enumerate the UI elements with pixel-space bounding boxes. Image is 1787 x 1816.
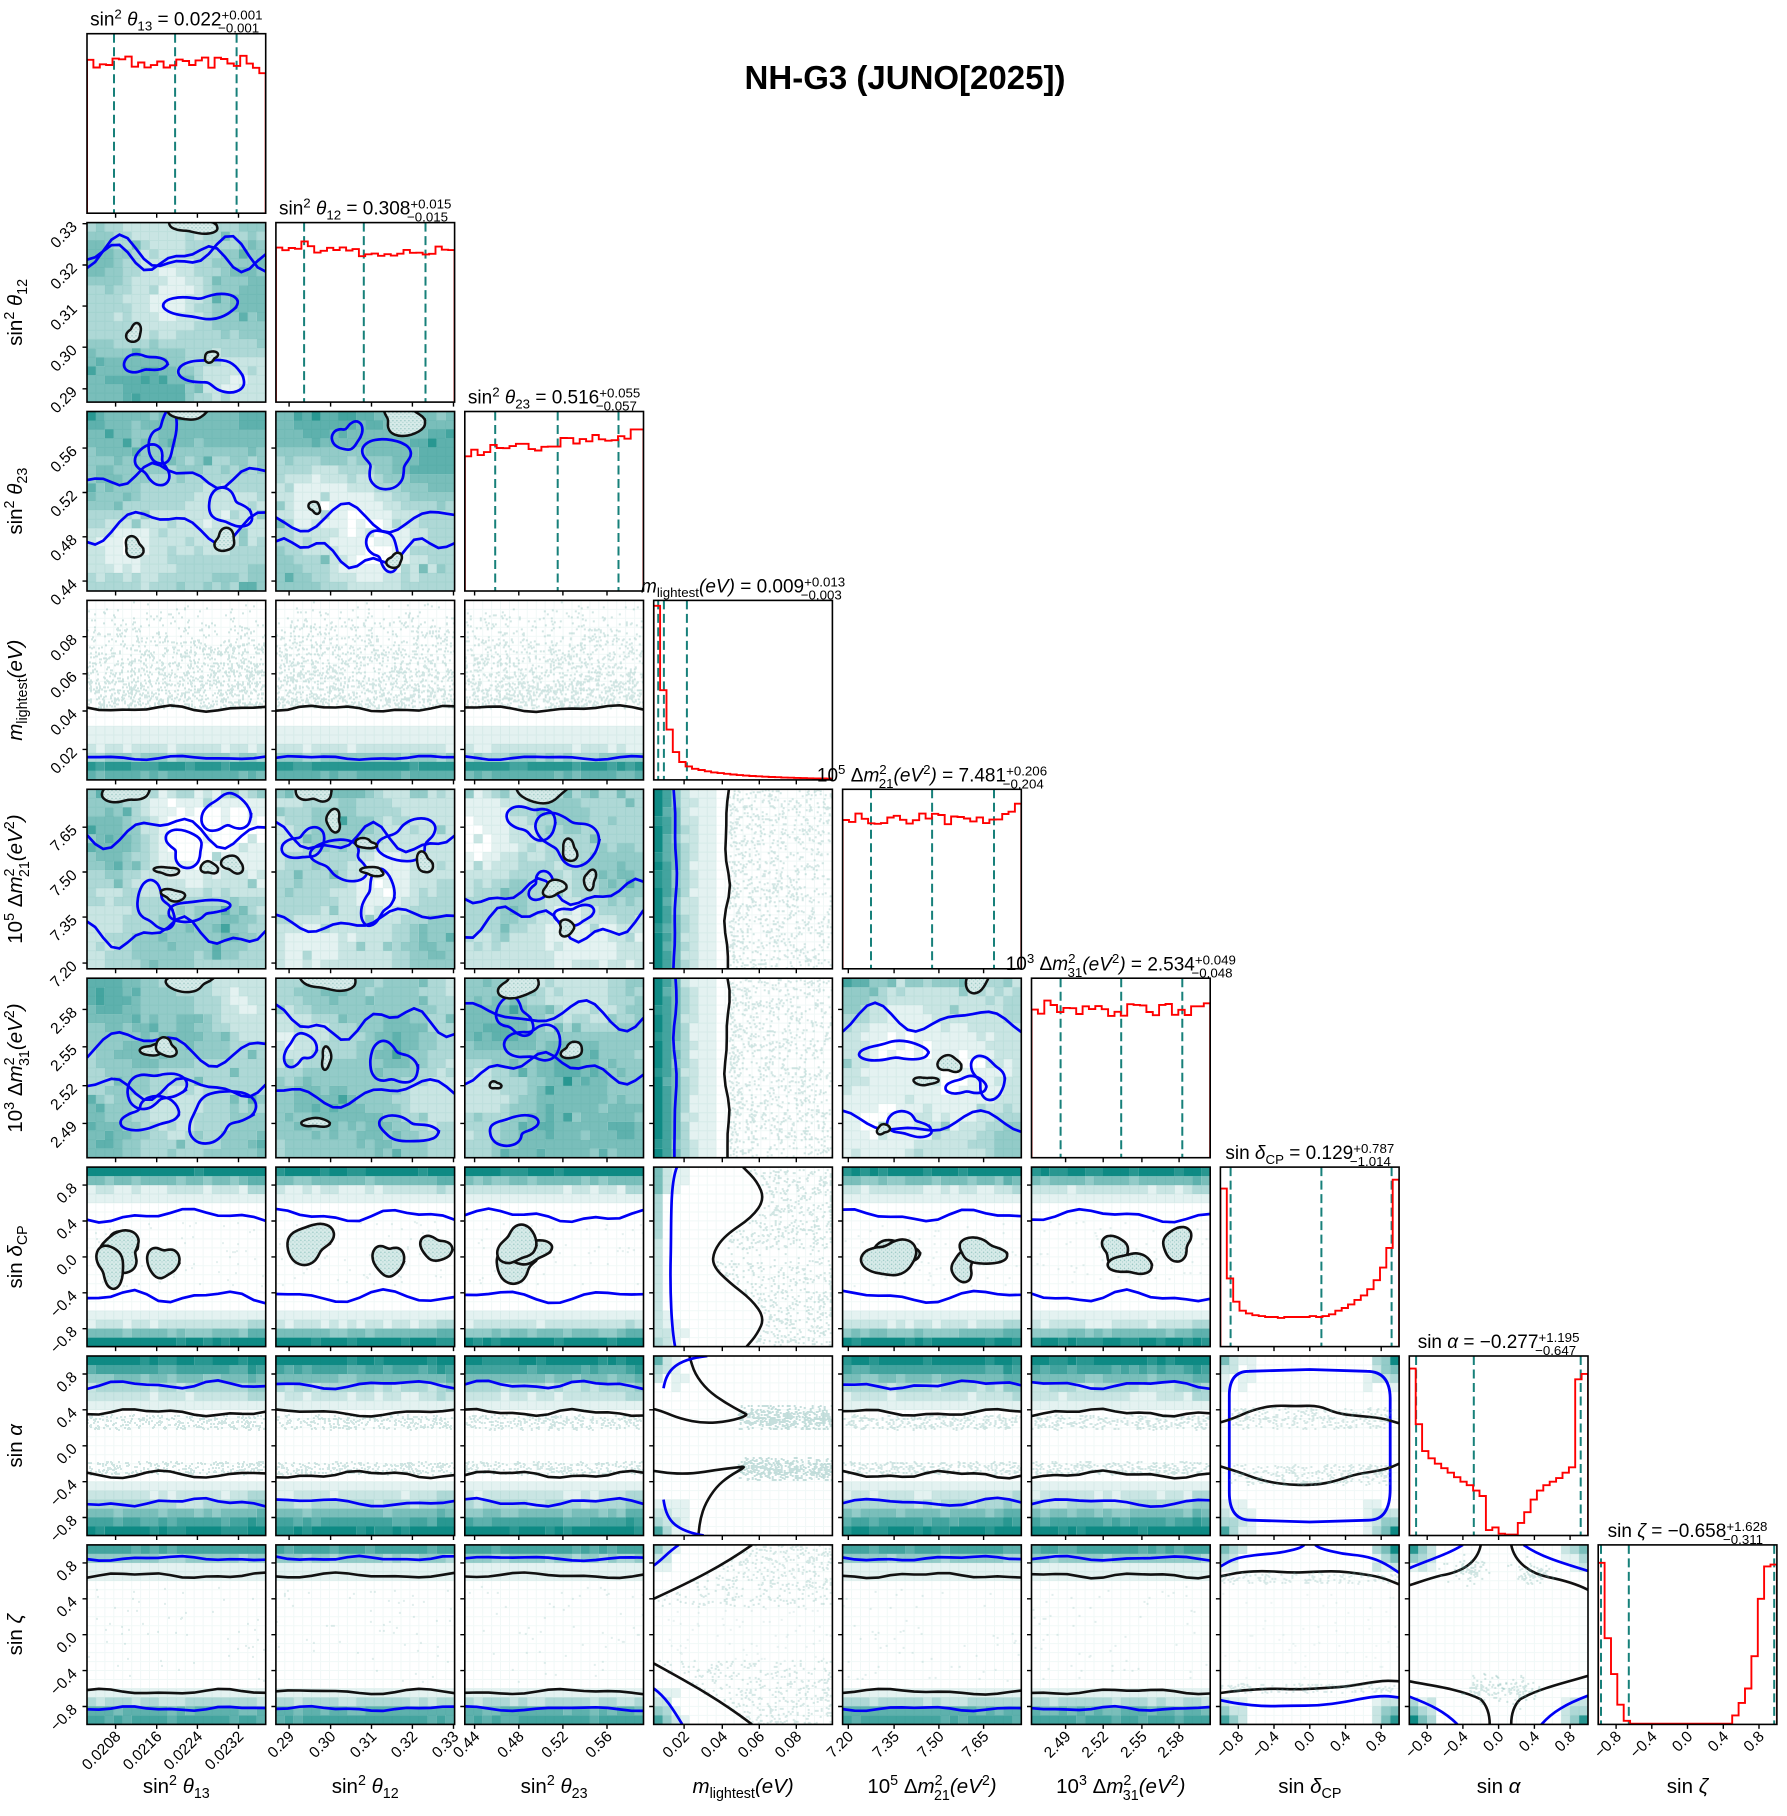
svg-text:sin ζ: sin ζ [1667,1775,1710,1798]
svg-text:sin α: sin α [1477,1775,1522,1798]
svg-text:NH-G3 (JUNO[2025]): NH-G3 (JUNO[2025]) [745,59,1066,96]
svg-text:sin ζ: sin ζ [4,1612,27,1655]
svg-text:sin α: sin α [4,1423,27,1468]
